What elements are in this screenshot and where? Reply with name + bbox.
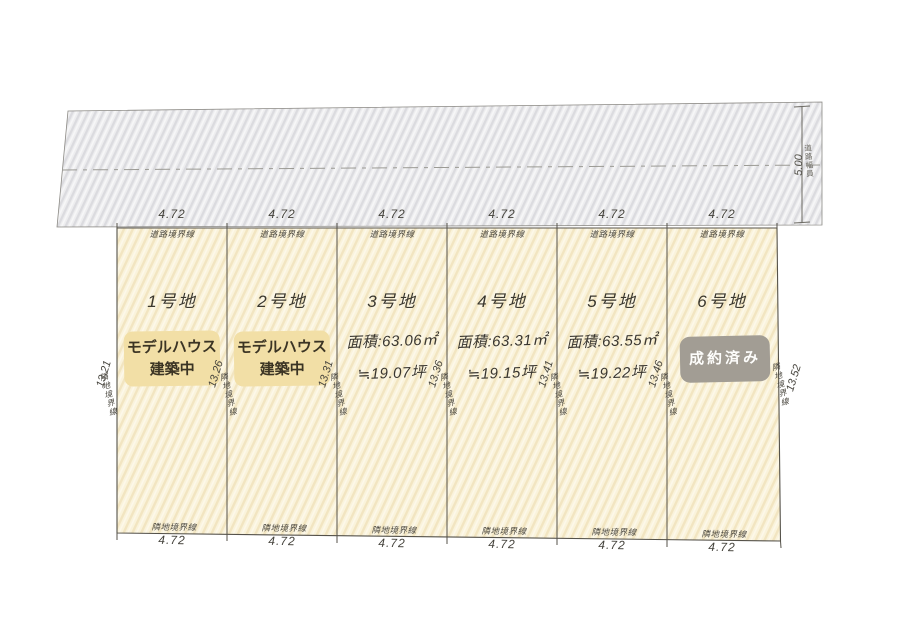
bottom-dim-plot1: 4.72 (142, 533, 202, 548)
top-dim-plot1: 4.72 (142, 207, 202, 221)
bottom-boundary-1: 隣地境界線 (139, 521, 209, 534)
road-boundary-label-2: 道路境界線 (247, 228, 317, 240)
top-dim-plot3: 4.72 (362, 207, 422, 221)
road-boundary-label-1: 道路境界線 (137, 228, 207, 240)
lot-layout-diagram: 4.72 4.72 4.72 4.72 4.72 4.72 道路境界線 道路境界… (0, 0, 900, 636)
plot3-name: 3号地 (337, 287, 447, 312)
bottom-dim-plot5: 4.72 (582, 538, 642, 553)
plot6-name: 6号地 (667, 287, 777, 312)
plot1-badge-line1: モデルハウス (124, 336, 220, 359)
road-boundary-label-4: 道路境界線 (467, 228, 537, 240)
road-boundary-label-6: 道路境界線 (687, 228, 757, 240)
plot1-name: 1号地 (117, 287, 227, 312)
bottom-dim-plot6: 4.72 (692, 540, 752, 555)
bottom-dim-plot2: 4.72 (252, 534, 312, 549)
plot2-badge-line1: モデルハウス (234, 336, 330, 359)
diagram-linework (0, 0, 900, 636)
plot2-model-house-badge: モデルハウス 建築中 (234, 330, 331, 386)
plot2-badge-line2: 建築中 (234, 358, 330, 381)
top-dim-plot6: 4.72 (692, 207, 752, 221)
plot6-sold-badge: 成約済み (680, 335, 771, 383)
road-boundary-label-5: 道路境界線 (577, 228, 647, 240)
top-dim-plot5: 4.72 (582, 207, 642, 221)
bottom-boundary-2: 隣地境界線 (249, 522, 319, 535)
plot1-badge-line2: 建築中 (124, 358, 220, 381)
top-dim-plot4: 4.72 (472, 207, 532, 221)
bottom-boundary-5: 隣地境界線 (579, 526, 649, 539)
bottom-boundary-6: 隣地境界線 (689, 528, 759, 541)
bottom-boundary-4: 隣地境界線 (469, 525, 539, 538)
bottom-boundary-3: 隣地境界線 (359, 524, 429, 537)
plot1-model-house-badge: モデルハウス 建築中 (124, 330, 221, 386)
plot2-name: 2号地 (227, 287, 337, 312)
bottom-dim-plot4: 4.72 (472, 537, 532, 552)
road-boundary-label-3: 道路境界線 (357, 228, 427, 240)
bottom-dim-plot3: 4.72 (362, 536, 422, 551)
plot5-name: 5号地 (557, 287, 667, 312)
plot4-name: 4号地 (447, 287, 557, 312)
top-dim-plot2: 4.72 (252, 207, 312, 221)
